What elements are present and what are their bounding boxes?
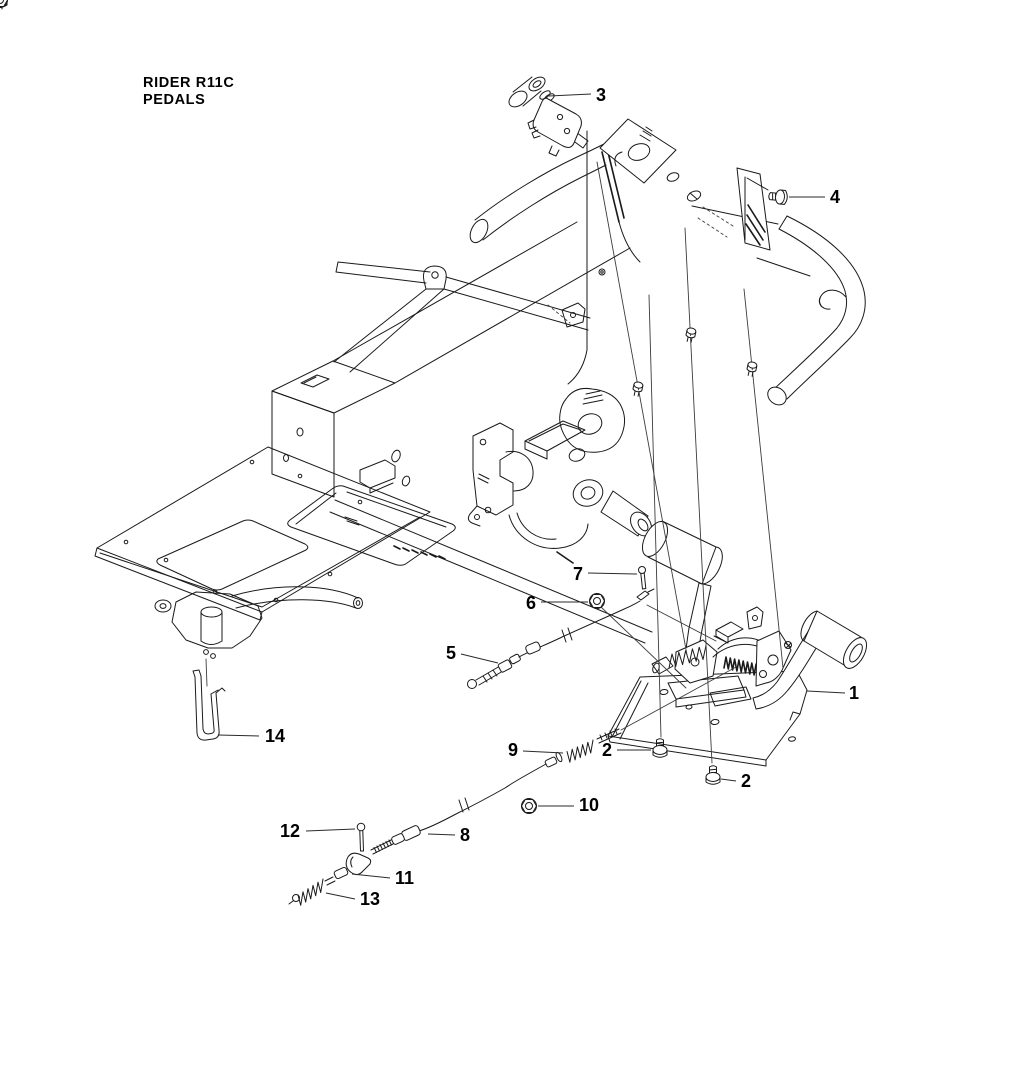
bolt-part2-right — [706, 766, 720, 785]
callout-2-right: 2 — [721, 771, 751, 791]
callout-5-label: 5 — [446, 643, 456, 663]
callout-9-label: 9 — [508, 740, 518, 760]
parts-diagram-page: RIDER R11C PEDALS — [0, 0, 1024, 1075]
push-nut-fastener — [746, 361, 758, 377]
right-handlebar-drawing — [764, 216, 865, 409]
callout-2-right-label: 2 — [741, 771, 751, 791]
bolt-part4 — [768, 189, 788, 205]
callout-11-label: 11 — [395, 868, 414, 888]
callout-3: 3 — [549, 85, 606, 105]
callout-4: 4 — [789, 187, 840, 207]
upper-cable-drawing — [0, 0, 716, 689]
callout-5: 5 — [446, 643, 498, 663]
callout-1-label: 1 — [849, 683, 859, 703]
left-handlebar-drawing — [467, 144, 606, 246]
callout-2-left-label: 2 — [602, 740, 612, 760]
title-model-line: RIDER R11C — [143, 75, 234, 91]
callout-14: 14 — [218, 726, 285, 746]
callout-12-label: 12 — [280, 821, 300, 841]
front-axle-bracket-drawing — [155, 587, 363, 686]
spring-part13 — [298, 879, 323, 905]
callout-13: 13 — [326, 889, 380, 909]
pin-part12 — [357, 823, 365, 851]
callout-7-label: 7 — [573, 564, 583, 584]
callout-7: 7 — [573, 564, 637, 584]
callout-13-label: 13 — [360, 889, 380, 909]
callout-10-label: 10 — [579, 795, 599, 815]
slotted-panel-drawing — [737, 168, 770, 250]
hook-bracket — [346, 853, 370, 874]
callout-2-left: 2 — [602, 740, 651, 760]
u-rod-part14-drawing — [193, 670, 225, 740]
pedal-assembly-drawing — [608, 518, 871, 766]
nut-part10 — [522, 799, 537, 814]
callout-8: 8 — [428, 825, 470, 845]
mid-frame-drawing — [468, 388, 655, 563]
spring-part9 — [567, 740, 593, 762]
callout-6-label: 6 — [526, 593, 536, 613]
push-nut-fastener — [632, 381, 644, 397]
nut-part6 — [590, 594, 605, 609]
title-section-line: PEDALS — [143, 92, 205, 108]
part3-fitting-drawing — [506, 74, 588, 156]
callout-6: 6 — [526, 593, 588, 613]
drawing-title: RIDER R11C PEDALS — [143, 75, 234, 108]
callout-4-label: 4 — [830, 187, 840, 207]
callout-1: 1 — [807, 683, 859, 703]
callout-8-label: 8 — [460, 825, 470, 845]
console-box-drawing — [272, 361, 395, 497]
fitting-part11 — [333, 867, 348, 880]
floor-pan-drawing — [95, 447, 455, 620]
pin-part7 — [639, 567, 646, 590]
callout-12: 12 — [280, 821, 355, 841]
callout-14-label: 14 — [265, 726, 285, 746]
callout-3-label: 3 — [596, 85, 606, 105]
callout-10: 10 — [538, 795, 599, 815]
lower-cable-drawing — [289, 729, 621, 905]
exploded-parts-diagram: RIDER R11C PEDALS — [0, 0, 1024, 1075]
